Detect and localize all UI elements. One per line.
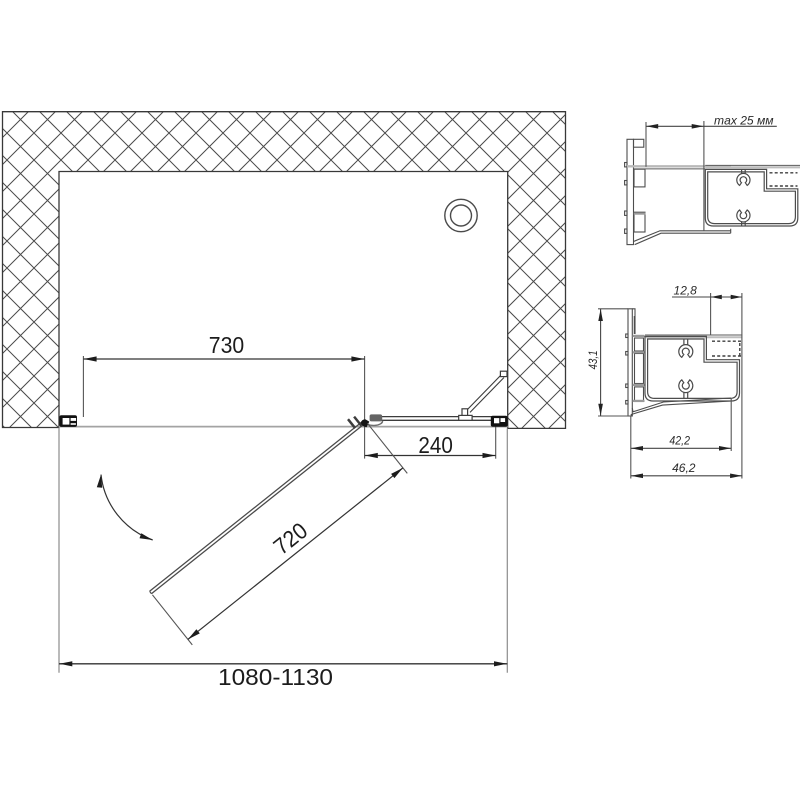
svg-text:43,1: 43,1 xyxy=(586,351,600,370)
svg-text:46,2: 46,2 xyxy=(672,461,696,475)
svg-text:730: 730 xyxy=(209,332,244,358)
svg-text:1080-1130: 1080-1130 xyxy=(218,664,333,690)
svg-text:42,2: 42,2 xyxy=(669,434,690,448)
svg-text:max 25 мм: max 25 мм xyxy=(714,114,774,128)
svg-text:240: 240 xyxy=(418,432,453,458)
svg-text:12,8: 12,8 xyxy=(674,284,698,298)
